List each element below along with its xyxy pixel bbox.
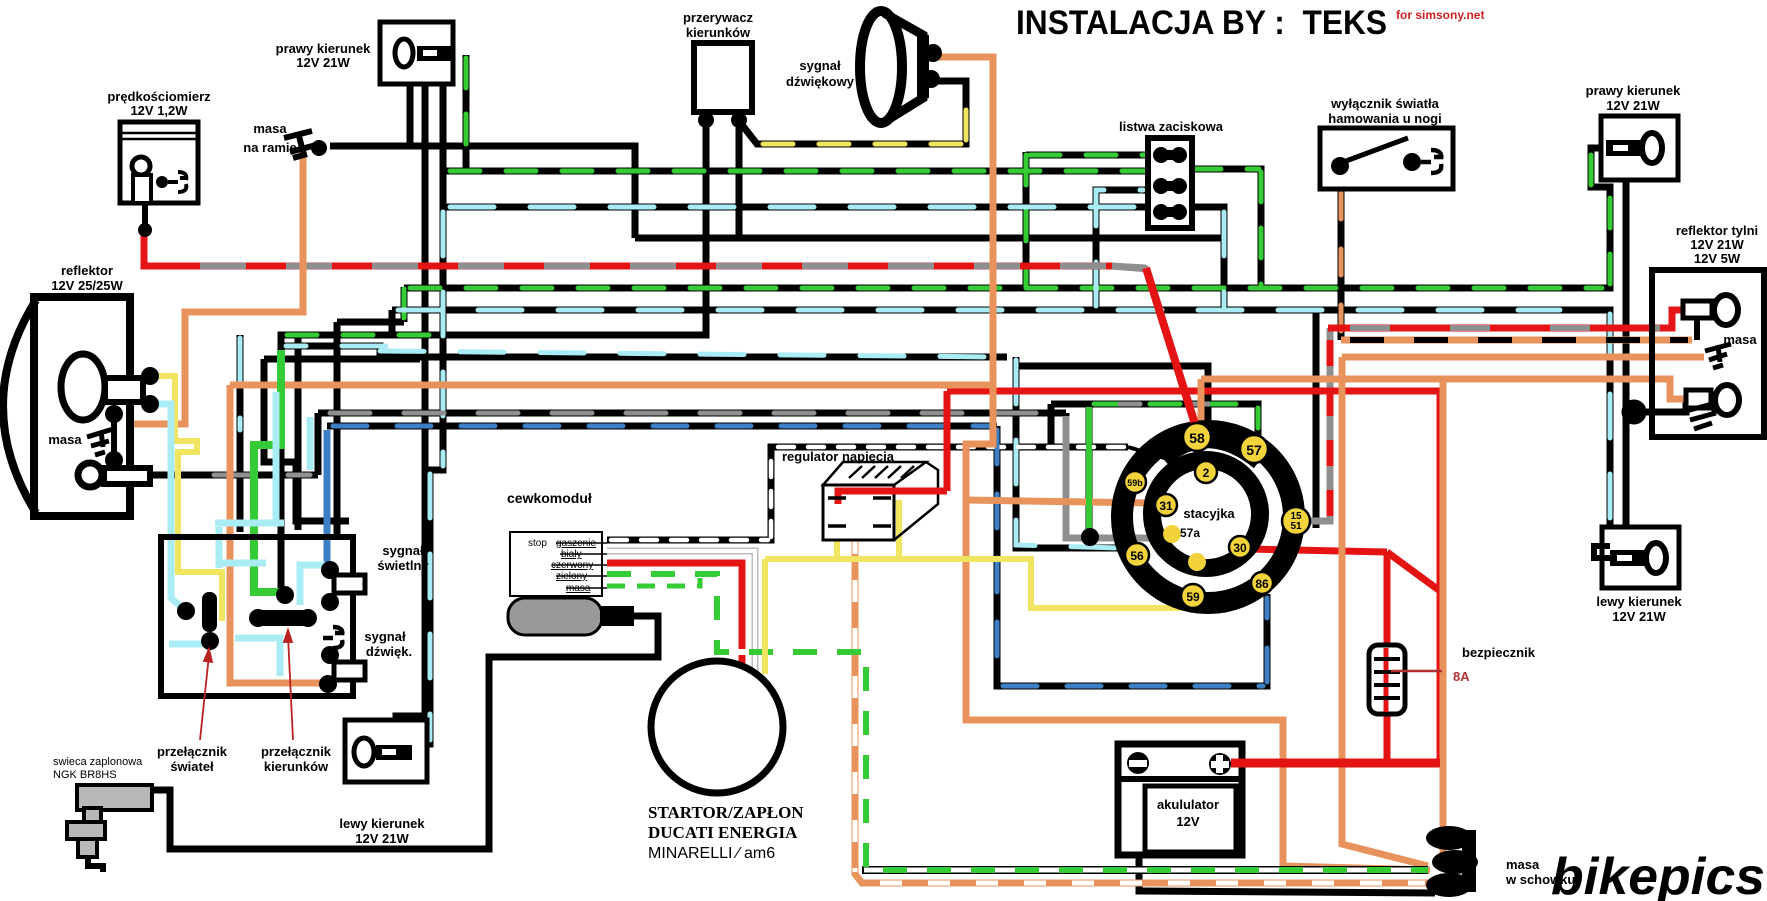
svg-text:zielony: zielony [556, 571, 587, 582]
svg-text:regulator napięcia: regulator napięcia [782, 449, 895, 464]
svg-text:przełącznik: przełącznik [261, 744, 332, 759]
svg-text:prawy kierunek: prawy kierunek [276, 41, 371, 56]
svg-text:reflektor tylni: reflektor tylni [1676, 223, 1758, 238]
svg-text:56: 56 [1130, 549, 1144, 563]
svg-text:31: 31 [1159, 499, 1173, 513]
svg-text:INSTALACJA BY : TEKS: INSTALACJA BY : TEKS [1016, 4, 1387, 42]
svg-text:kierunków: kierunków [264, 759, 329, 774]
svg-text:przełącznik: przełącznik [157, 744, 228, 759]
svg-text:akululator: akululator [1157, 797, 1219, 812]
svg-text:12V 21W: 12V 21W [355, 831, 409, 846]
svg-text:masa: masa [48, 432, 82, 447]
svg-text:reflektor: reflektor [61, 263, 113, 278]
svg-text:masa: masa [566, 583, 591, 594]
svg-text:hamowania u nogi: hamowania u nogi [1328, 111, 1441, 126]
svg-text:masa: masa [253, 121, 287, 136]
svg-text:dźwięk.: dźwięk. [366, 644, 412, 659]
svg-text:57a: 57a [1180, 526, 1200, 540]
svg-text:świateł: świateł [170, 759, 214, 774]
svg-text:bikepics: bikepics [1551, 848, 1765, 901]
svg-text:2: 2 [1203, 466, 1210, 480]
svg-text:przerywacz: przerywacz [683, 10, 754, 25]
svg-text:for simsony.net: for simsony.net [1396, 8, 1484, 22]
svg-text:NGK BR8HS: NGK BR8HS [53, 769, 117, 781]
svg-text:57: 57 [1246, 442, 1262, 458]
svg-text:86: 86 [1255, 577, 1269, 591]
svg-text:dźwiękowy: dźwiękowy [786, 74, 855, 89]
svg-text:listwa zaciskowa: listwa zaciskowa [1119, 119, 1224, 134]
svg-text:bezpiecznik: bezpiecznik [1462, 645, 1536, 660]
svg-text:12V 5W: 12V 5W [1694, 251, 1741, 266]
svg-text:8A: 8A [1453, 669, 1470, 684]
svg-text:30: 30 [1233, 541, 1247, 555]
svg-text:stop: stop [528, 538, 547, 549]
svg-text:czerwony: czerwony [551, 560, 593, 571]
svg-text:wyłącznik światła: wyłącznik światła [1330, 96, 1439, 111]
svg-text:sygnał: sygnał [364, 629, 406, 644]
svg-text:STARTOR/ZAPŁON: STARTOR/ZAPŁON [648, 803, 804, 822]
svg-text:12V 1,2W: 12V 1,2W [130, 103, 188, 118]
svg-text:12V 21W: 12V 21W [1690, 237, 1744, 252]
svg-text:lewy kierunek: lewy kierunek [1596, 594, 1682, 609]
svg-text:59b: 59b [1127, 478, 1143, 488]
svg-text:cewkomoduł: cewkomoduł [507, 490, 592, 506]
svg-text:51: 51 [1290, 521, 1302, 532]
svg-text:12V 21W: 12V 21W [1606, 98, 1660, 113]
svg-text:prędkościomierz: prędkościomierz [107, 89, 211, 104]
svg-text:DUCATI ENERGIA: DUCATI ENERGIA [648, 823, 798, 842]
svg-text:prawy kierunek: prawy kierunek [1586, 83, 1681, 98]
svg-text:swieca zaplonowa: swieca zaplonowa [53, 756, 143, 768]
svg-text:kierunków: kierunków [686, 25, 751, 40]
svg-text:59: 59 [1186, 590, 1200, 604]
svg-text:lewy kierunek: lewy kierunek [339, 816, 425, 831]
svg-text:gaszenie: gaszenie [556, 538, 596, 549]
svg-text:sygnał: sygnał [799, 58, 841, 73]
svg-text:stacyjka: stacyjka [1183, 506, 1235, 521]
svg-text:sygnał: sygnał [382, 543, 424, 558]
svg-text:masa: masa [1723, 332, 1757, 347]
svg-text:masa: masa [1506, 857, 1540, 872]
svg-text:na ramie: na ramie [243, 140, 296, 155]
svg-text:12V 21W: 12V 21W [296, 55, 350, 70]
svg-text:biały: biały [561, 549, 582, 560]
svg-text:12V 25/25W: 12V 25/25W [51, 278, 123, 293]
svg-text:12V: 12V [1176, 814, 1199, 829]
svg-text:12V 21W: 12V 21W [1612, 609, 1666, 624]
svg-text:MINARELLI ⁄ am6: MINARELLI ⁄ am6 [648, 845, 775, 862]
svg-text:świetlny: świetlny [377, 558, 429, 573]
svg-text:58: 58 [1189, 430, 1205, 446]
